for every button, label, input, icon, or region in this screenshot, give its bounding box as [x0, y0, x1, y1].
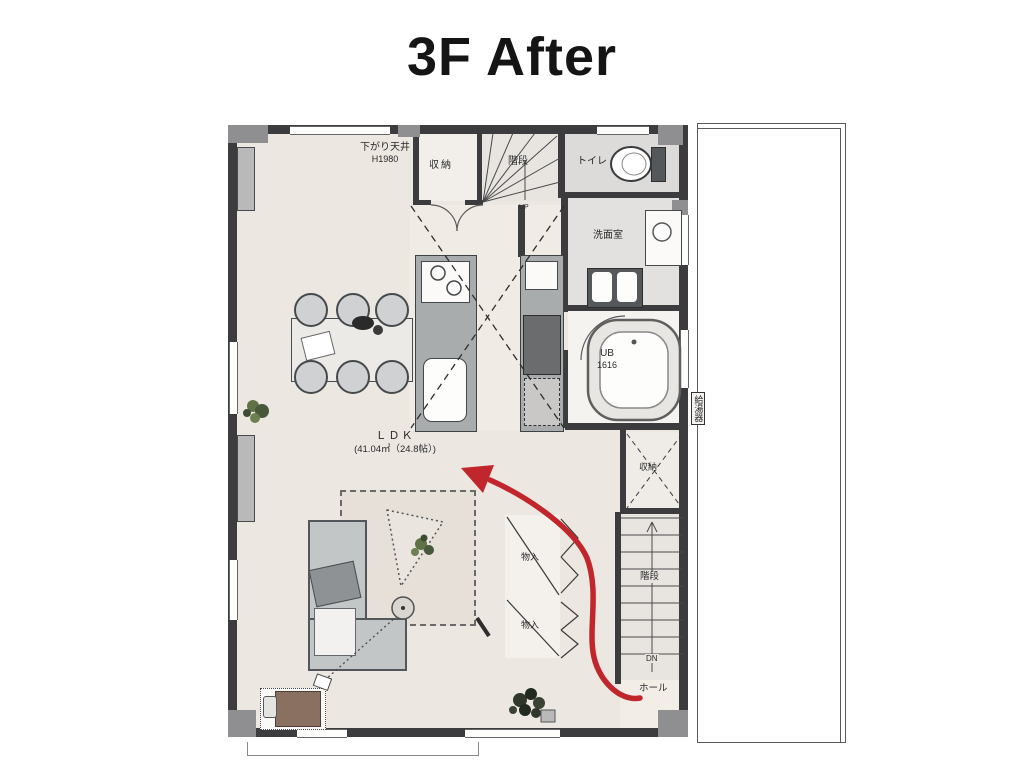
pillar-bottom-right: [658, 710, 688, 737]
wall-left: [228, 125, 237, 737]
wall-storage-door-jamb-r: [465, 200, 483, 205]
bath-size: 1616: [597, 360, 617, 370]
room-label-washroom: 洗面室: [593, 230, 623, 242]
desk-top: [275, 691, 321, 727]
dishwasher: [523, 315, 561, 375]
wall-stairs-left: [615, 512, 621, 684]
label-dropped-ceiling: 下がり天井 H1980: [343, 142, 427, 165]
cabinet-left-middle: [237, 435, 255, 522]
window-left-dining: [229, 342, 238, 414]
roof-outline-innerline-top: [698, 128, 841, 129]
dining-chair: [375, 360, 409, 394]
dropped-ceiling-text: 下がり天井: [360, 142, 410, 153]
vanity-counter: [645, 210, 682, 266]
pillar-top-right: [658, 125, 683, 145]
dining-chair: [336, 360, 370, 394]
dining-chair: [375, 293, 409, 327]
kitchen-sink: [423, 358, 467, 422]
pillar-top-center: [398, 125, 420, 137]
wall-bath-bottom: [565, 423, 682, 430]
room-label-stairs-bottom: 階段: [639, 572, 660, 583]
floor-plan: 下がり天井 H1980 収納 階段 UP トイレ 洗面室 UB 1616 給湯器…: [225, 120, 695, 745]
window-right-bath: [680, 330, 689, 388]
dining-chair: [336, 293, 370, 327]
bath-text: UB: [600, 348, 614, 359]
room-label-stairs-top: 階段: [508, 156, 528, 168]
label-dn: DN: [645, 654, 659, 663]
label-water-heater: 給湯器: [691, 392, 705, 425]
appliance-dashed: [524, 378, 560, 426]
sofa-seat-cushion: [314, 608, 356, 656]
window-left-living: [229, 560, 238, 620]
washing-machine-drum-1: [592, 272, 612, 302]
room-label-hall: ホール: [639, 684, 668, 695]
desk-chair: [263, 696, 277, 718]
dining-chair: [294, 360, 328, 394]
counter-sink: [525, 261, 558, 290]
toilet-tank: [651, 147, 666, 182]
wall-storage-right-left: [620, 430, 626, 512]
bath-floor: [568, 310, 682, 426]
window-top-left: [290, 126, 390, 135]
pillar-bottom-left: [228, 710, 256, 737]
room-label-toilet: トイレ: [577, 156, 607, 168]
wall-kitchen-back: [518, 205, 525, 257]
dining-chair: [294, 293, 328, 327]
page-title: 3F After: [0, 26, 1024, 88]
window-bottom-left: [297, 729, 347, 738]
wall-toilet-left: [558, 125, 565, 198]
roof-outline-innerline-right: [840, 128, 841, 742]
window-bottom-center: [465, 729, 560, 738]
room-label-closet-upper: 物入: [521, 552, 539, 562]
roof-outline: [697, 123, 846, 743]
room-label-closet-lower: 物入: [521, 620, 539, 630]
cabinet-left-top: [237, 147, 255, 211]
dropped-ceiling-height: H1980: [372, 154, 399, 164]
room-label-bath: UB 1616: [597, 348, 617, 371]
washing-machine-drum-2: [617, 272, 637, 302]
pillar-top-left: [228, 125, 268, 143]
label-up: UP: [519, 204, 529, 212]
room-label-storage-right: 収納: [639, 462, 657, 472]
wall-toilet-washroom: [561, 192, 682, 198]
wall-storage-door-jamb-l: [413, 200, 431, 205]
room-label-storage-top: 収納: [429, 160, 453, 172]
window-toilet: [597, 126, 649, 135]
wall-storage-top-left: [413, 125, 419, 205]
room-label-ldk-area: (41.04㎡（24.8帖）): [320, 445, 470, 456]
wall-storage-stairs: [620, 508, 683, 514]
room-label-ldk: ＬＤＫ: [355, 430, 435, 443]
cooktop: [421, 261, 470, 303]
wall-storage-stairs-top: [477, 133, 482, 205]
